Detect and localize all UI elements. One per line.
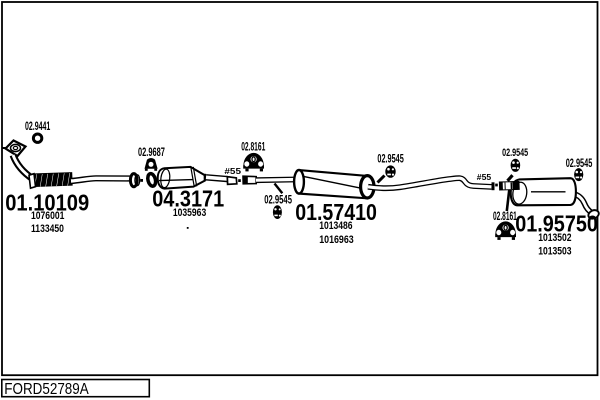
svg-text:02.9545: 02.9545 (502, 147, 529, 160)
svg-text:02.9441: 02.9441 (25, 121, 51, 134)
svg-text:02.9687: 02.9687 (138, 146, 165, 159)
svg-text:1035963: 1035963 (173, 207, 207, 219)
svg-text:02.9545: 02.9545 (264, 194, 292, 207)
svg-text:#55: #55 (224, 167, 241, 176)
svg-text:02.9545: 02.9545 (566, 157, 593, 170)
svg-text:#55: #55 (477, 172, 492, 182)
svg-text:1076001: 1076001 (31, 210, 65, 222)
svg-text:1016963: 1016963 (319, 234, 354, 246)
svg-text:02.8161: 02.8161 (493, 210, 517, 222)
svg-text:1133450: 1133450 (31, 223, 64, 235)
svg-text:1013486: 1013486 (319, 220, 353, 232)
svg-text:02.8161: 02.8161 (241, 140, 265, 153)
svg-text:1013503: 1013503 (538, 246, 572, 258)
svg-text:1013502: 1013502 (538, 232, 572, 244)
svg-text:02.9545: 02.9545 (377, 153, 404, 166)
svg-text:FORD52789A: FORD52789A (4, 381, 89, 398)
